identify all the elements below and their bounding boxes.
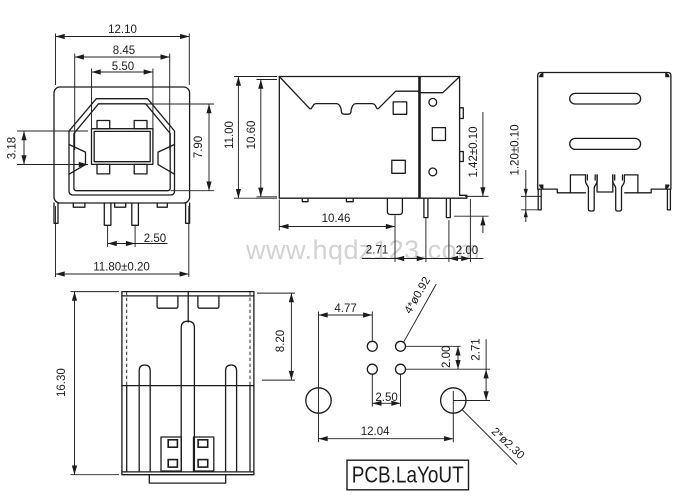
svg-text:10.46: 10.46 bbox=[322, 213, 351, 225]
svg-text:2*ø2.30: 2*ø2.30 bbox=[489, 426, 527, 462]
svg-text:2.00: 2.00 bbox=[456, 245, 478, 257]
svg-text:2.71: 2.71 bbox=[471, 338, 483, 360]
svg-text:www.hqdz123.com: www.hqdz123.com bbox=[245, 235, 480, 265]
svg-text:8.20: 8.20 bbox=[275, 330, 287, 352]
svg-text:12.04: 12.04 bbox=[361, 426, 390, 438]
svg-text:8.45: 8.45 bbox=[113, 45, 135, 57]
svg-text:4.77: 4.77 bbox=[334, 303, 356, 315]
svg-text:PCB.LaYoUT: PCB.LaYoUT bbox=[352, 462, 464, 488]
svg-text:16.30: 16.30 bbox=[56, 368, 68, 397]
svg-text:3.18: 3.18 bbox=[7, 137, 19, 159]
svg-text:2.00: 2.00 bbox=[441, 346, 453, 368]
svg-text:7.90: 7.90 bbox=[193, 136, 205, 158]
svg-text:11.00: 11.00 bbox=[224, 121, 236, 149]
svg-text:1.42±0.10: 1.42±0.10 bbox=[468, 126, 480, 177]
svg-text:1.20±0.10: 1.20±0.10 bbox=[509, 124, 521, 175]
svg-text:2.71: 2.71 bbox=[366, 245, 388, 257]
svg-text:11.80±0.20: 11.80±0.20 bbox=[93, 262, 150, 274]
svg-text:12.10: 12.10 bbox=[108, 24, 137, 36]
svg-text:2.50: 2.50 bbox=[375, 392, 397, 404]
svg-text:4*ø0.92: 4*ø0.92 bbox=[403, 275, 434, 316]
svg-text:5.50: 5.50 bbox=[112, 61, 134, 73]
svg-text:10.60: 10.60 bbox=[246, 121, 258, 150]
svg-text:2.50: 2.50 bbox=[144, 233, 166, 245]
